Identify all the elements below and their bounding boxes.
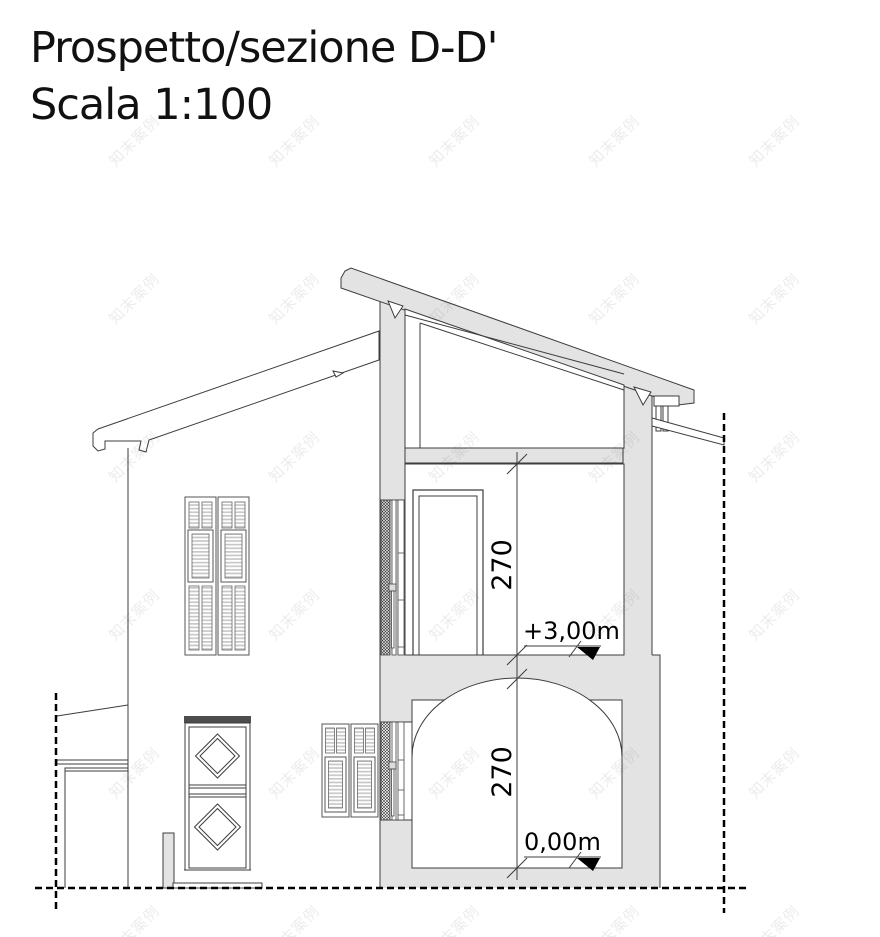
entrance-door [173, 716, 262, 888]
dimension-lower-label: 270 [487, 746, 518, 798]
level-ground-floor-label: 0,00m [524, 828, 601, 856]
upper-shuttered-window [185, 497, 249, 655]
annex-roof-line [57, 705, 128, 716]
cut-window-upper [381, 500, 404, 655]
door-lintel [184, 716, 251, 723]
drawing-sheet: 270 270 +3,00m 0,00m [0, 0, 880, 937]
drawing-title: Prospetto/sezione D-D' [30, 20, 498, 77]
title-block: Prospetto/sezione D-D' Scala 1:100 [30, 20, 498, 134]
elevation-section-drawing: 270 270 +3,00m 0,00m [0, 0, 880, 937]
level-first-floor-label: +3,00m [523, 617, 620, 645]
lower-shuttered-window [322, 724, 378, 817]
left-roof-eave [93, 331, 379, 452]
pillar [163, 833, 174, 888]
cut-window-lower [381, 722, 404, 820]
dimension-upper-label: 270 [487, 539, 518, 591]
drawing-scale: Scala 1:100 [30, 77, 498, 134]
